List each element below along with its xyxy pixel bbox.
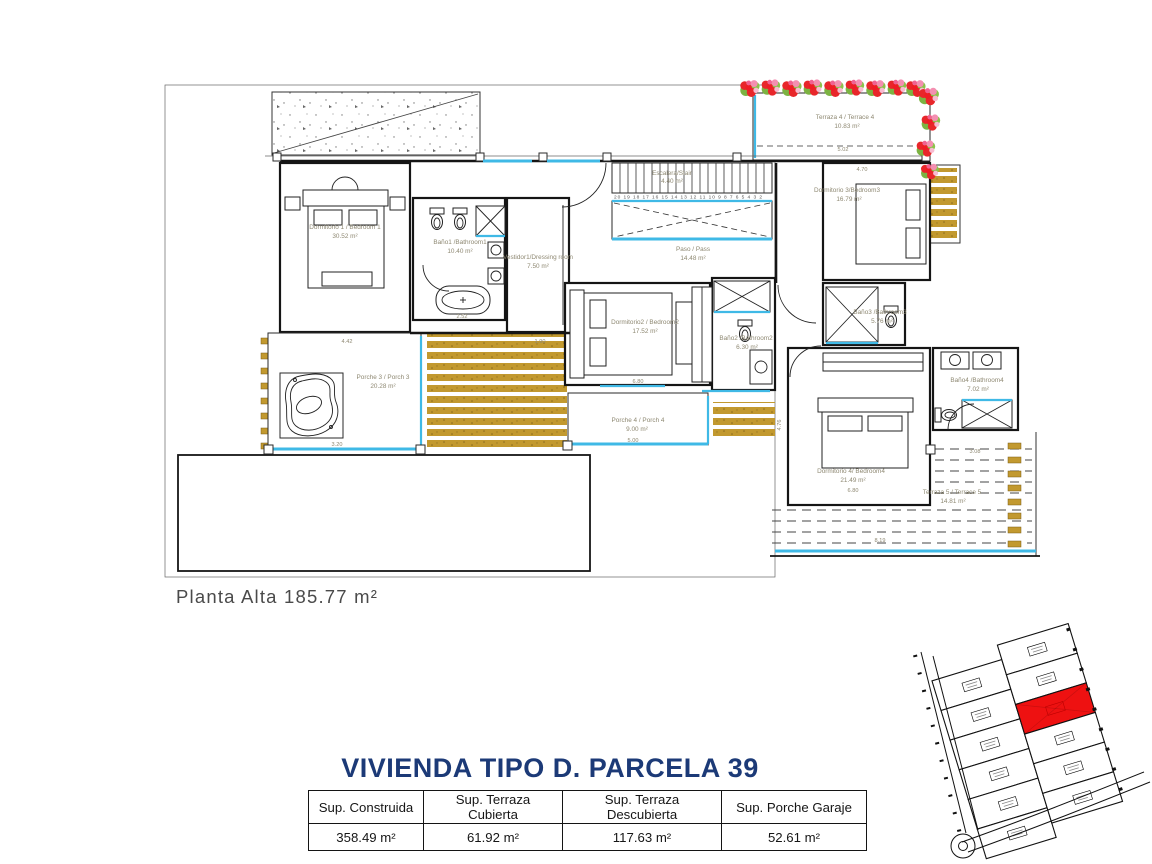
- value-sup-terraza-cubierta: 61.92 m²: [424, 824, 563, 851]
- header-sup-terraza-descubierta: Sup. Terraza Descubierta: [563, 791, 722, 824]
- wardrobe-icon: [692, 287, 712, 382]
- room-area-bedroom-4: 21.49 m²: [840, 477, 865, 484]
- room-area-dressing-1: 7.50 m²: [527, 263, 549, 270]
- room-area-terrace-4: 10.83 m²: [834, 123, 859, 130]
- room-label-bathroom-3: Baño3 /Bathroom3: [853, 309, 907, 316]
- roof-hatch: [272, 92, 480, 155]
- header-sup-construida: Sup. Construida: [309, 791, 424, 824]
- room-label-bedroom-2: Dormitorio2 / Bedroom2: [611, 319, 679, 326]
- room-area-porch-4: 9.00 m²: [626, 426, 648, 433]
- stairs: 20 19 18 17 16 15 14 13 12 11 10 9 8 7 6…: [612, 163, 772, 239]
- summary-table-header-row: Sup. Construida Sup. Terraza Cubierta Su…: [309, 791, 867, 824]
- floor-plan-drawing: 20 19 18 17 16 15 14 13 12 11 10 9 8 7 6…: [0, 0, 1152, 864]
- floor-plan-page: 20 19 18 17 16 15 14 13 12 11 10 9 8 7 6…: [0, 0, 1152, 864]
- room-area-bedroom-2: 17.52 m²: [632, 328, 657, 335]
- deck-left: [427, 334, 567, 451]
- dim-label: 3.08: [970, 449, 981, 455]
- room-label-stair: Escalera/Stair: [652, 170, 693, 177]
- room-area-bedroom-3: 16.79 m²: [836, 196, 861, 203]
- room-label-bedroom-3: Dormitorio 3/Bedroom3: [814, 187, 881, 194]
- dim-label: 6.80: [633, 379, 644, 385]
- dim-label: 3.20: [332, 442, 343, 448]
- pool-outline: [178, 455, 590, 571]
- room-area-bathroom-2: 6.30 m²: [736, 344, 758, 351]
- room-area-terrace-5: 14.81 m²: [940, 498, 965, 505]
- room-label-terrace-4: Terraza 4 / Terrace 4: [816, 114, 875, 121]
- jacuzzi-icon: [280, 373, 343, 438]
- value-sup-porche-garaje: 52.61 m²: [722, 824, 867, 851]
- dim-label: 8.19: [875, 538, 886, 544]
- room-label-bathroom-1: Baño1 /Bathroom1: [433, 239, 487, 246]
- header-sup-terraza-cubierta: Sup. Terraza Cubierta: [424, 791, 563, 824]
- summary-table-wrapper: Sup. Construida Sup. Terraza Cubierta Su…: [308, 790, 867, 851]
- bed-icon-bedroom-3: [856, 184, 926, 264]
- roundabout-icon: [951, 834, 975, 858]
- bed-icon-bedroom-4: [818, 353, 923, 468]
- floor-label: Planta Alta 185.77 m²: [176, 586, 378, 608]
- room-label-bathroom-2: Baño2 /Bathroom2: [719, 335, 773, 342]
- room-label-bathroom-4: Baño4 /Bathroom4: [950, 377, 1004, 384]
- room-area-porch-3: 20.28 m²: [370, 383, 395, 390]
- room-label-porch-4: Porche 4 / Porch 4: [612, 417, 665, 424]
- room-area-pass: 14.48 m²: [680, 255, 705, 262]
- room-area-bathroom-3: 5.76 m²: [871, 318, 893, 325]
- header-sup-porche-garaje: Sup. Porche Garaje: [722, 791, 867, 824]
- dim-label: 4.76: [777, 420, 783, 431]
- page-title: VIVIENDA TIPO D. PARCELA 39: [250, 753, 850, 784]
- dim-label: 4.70: [857, 167, 868, 173]
- room-label-dressing-1: Vestidor1/Dressing room: [503, 254, 573, 261]
- value-sup-terraza-descubierta: 117.63 m²: [563, 824, 722, 851]
- dim-label: 6.80: [848, 488, 859, 494]
- room-label-porch-3: Porche 3 / Porch 3: [357, 374, 410, 381]
- room-label-pass: Paso / Pass: [676, 246, 710, 253]
- room-area-bathroom-4: 7.02 m²: [967, 386, 989, 393]
- room-label-bedroom-1: Dormitorio 1 / Bedroom 1: [309, 224, 381, 231]
- value-sup-construida: 358.49 m²: [309, 824, 424, 851]
- dim-label: 1.90: [535, 339, 546, 345]
- room-area-bathroom-1: 10.40 m²: [447, 248, 472, 255]
- summary-table: Sup. Construida Sup. Terraza Cubierta Su…: [308, 790, 867, 851]
- room-area-stair: 4.40 m²: [661, 178, 683, 185]
- stair-step-numbers: 20 19 18 17 16 15 14 13 12 11 10 9 8 7 6…: [614, 195, 762, 201]
- room-label-bedroom-4: Dormitorio 4/ Bedroom4: [817, 468, 885, 475]
- dim-label: 2.52: [457, 314, 468, 320]
- dim-label: 5.02: [838, 147, 849, 153]
- room-area-bedroom-1: 30.52 m²: [332, 233, 357, 240]
- room-label-terrace-5: Terraza 5 / Terrace 5: [923, 489, 982, 496]
- parcel-grid: [928, 624, 1127, 859]
- summary-table-value-row: 358.49 m² 61.92 m² 117.63 m² 52.61 m²: [309, 824, 867, 851]
- dim-label: 5.00: [628, 438, 639, 444]
- site-map: [915, 624, 1150, 859]
- deck-center: [713, 402, 775, 436]
- dim-label: 4.42: [342, 339, 353, 345]
